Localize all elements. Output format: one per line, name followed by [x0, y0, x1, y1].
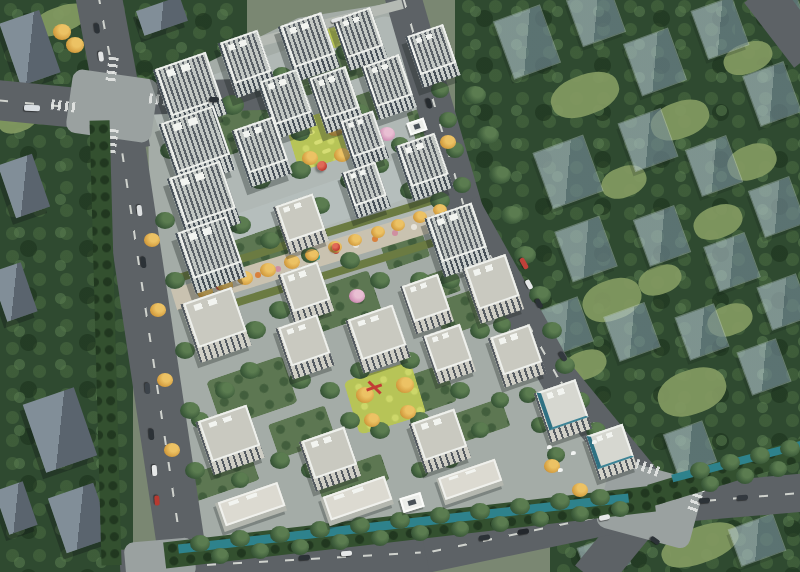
- rooftop-units: [348, 117, 368, 128]
- rooftop-units: [242, 124, 267, 138]
- red-sphere-sculpture: [317, 161, 327, 171]
- aerial-render: [0, 0, 800, 572]
- bird: [571, 451, 576, 455]
- tree-cluster: [470, 503, 490, 520]
- autumn-tree: [400, 405, 416, 419]
- car: [698, 497, 709, 503]
- rooftop-units: [420, 416, 447, 430]
- autumn-tree: [371, 226, 385, 238]
- red-canopy-sculpture: [364, 379, 383, 396]
- car: [517, 528, 529, 535]
- tree-cluster: [320, 382, 340, 399]
- bird: [592, 440, 597, 444]
- rooftop-units: [188, 224, 219, 240]
- tree-cluster: [501, 206, 523, 225]
- tree-cluster: [185, 462, 205, 479]
- car: [148, 428, 154, 439]
- tree-cluster: [720, 454, 740, 471]
- rooftop-units: [410, 281, 433, 293]
- car: [478, 534, 490, 540]
- rooftop-units: [473, 262, 499, 276]
- tree-cluster: [750, 447, 770, 464]
- autumn-tree: [305, 249, 319, 261]
- rooftop-units: [342, 14, 365, 26]
- tree-cluster: [340, 252, 360, 269]
- rooftop-units: [318, 73, 341, 86]
- rooftop-units: [405, 140, 429, 153]
- rooftop-units: [208, 413, 239, 429]
- tree-cluster: [464, 86, 486, 105]
- autumn-tree: [144, 233, 160, 247]
- tree-cluster: [477, 126, 499, 145]
- tree-cluster: [165, 272, 185, 289]
- tree-cluster: [240, 362, 260, 379]
- rooftop-units: [283, 201, 307, 213]
- tree-cluster: [270, 526, 290, 543]
- car: [151, 464, 157, 475]
- rooftop-units: [596, 430, 617, 441]
- autumn-tree: [391, 219, 405, 231]
- tree-cluster: [430, 507, 450, 524]
- autumn-tree: [364, 413, 380, 427]
- street-umbrella: [411, 224, 417, 230]
- car: [136, 204, 142, 215]
- tree-cluster: [489, 166, 511, 185]
- tree-cluster: [215, 382, 235, 399]
- rooftop-units: [432, 331, 455, 343]
- autumn-tree: [150, 303, 166, 317]
- tree-cluster: [155, 212, 175, 229]
- autumn-tree: [284, 255, 300, 269]
- tree-cluster: [390, 512, 410, 529]
- tree-cluster: [450, 382, 470, 399]
- tree-cluster: [590, 489, 610, 506]
- autumn-tree: [348, 234, 362, 246]
- autumn-tree: [572, 483, 588, 497]
- car: [144, 382, 150, 393]
- rooftop-units: [415, 31, 438, 43]
- rooftop-units: [193, 295, 224, 311]
- tree-cluster: [270, 452, 290, 469]
- tree-cluster: [550, 493, 570, 510]
- rooftop-units: [289, 20, 315, 34]
- autumn-tree: [164, 443, 180, 457]
- car: [209, 96, 219, 101]
- tree-cluster: [370, 272, 390, 289]
- tree-cluster: [180, 402, 200, 419]
- tree-cluster: [542, 322, 562, 339]
- rooftop-units: [288, 269, 312, 282]
- car: [154, 495, 160, 505]
- car: [298, 554, 309, 560]
- rooftop-units: [436, 211, 465, 226]
- rooftop-units: [350, 168, 370, 179]
- autumn-tree: [440, 135, 456, 149]
- car: [140, 256, 146, 267]
- tree-cluster: [510, 498, 530, 515]
- tree-cluster: [780, 440, 800, 457]
- red-sphere-sculpture: [332, 243, 340, 251]
- bird: [558, 468, 563, 472]
- rooftop-units: [286, 322, 311, 335]
- rooftop-units: [499, 332, 524, 345]
- rooftop-units: [166, 60, 199, 77]
- rooftop-units: [228, 37, 252, 50]
- autumn-tree: [260, 263, 276, 277]
- car: [24, 105, 40, 112]
- tree-cluster: [175, 342, 195, 359]
- car: [340, 550, 351, 556]
- tree-cluster: [230, 530, 250, 547]
- rooftop-units: [546, 386, 570, 399]
- blossom-tree: [349, 289, 365, 303]
- rooftop-units: [172, 114, 206, 132]
- car: [736, 494, 747, 500]
- tree-cluster: [260, 232, 280, 249]
- autumn-tree: [302, 151, 318, 165]
- bird: [547, 445, 552, 449]
- autumn-tree: [157, 373, 173, 387]
- tree-cluster: [350, 517, 370, 534]
- rooftop-units: [371, 61, 394, 74]
- tree-cluster: [190, 535, 210, 552]
- rooftop-units: [180, 169, 213, 186]
- rooftop-units: [310, 434, 337, 448]
- tree-cluster: [310, 521, 330, 538]
- rooftop-units: [268, 76, 292, 90]
- rooftop-units: [357, 312, 386, 327]
